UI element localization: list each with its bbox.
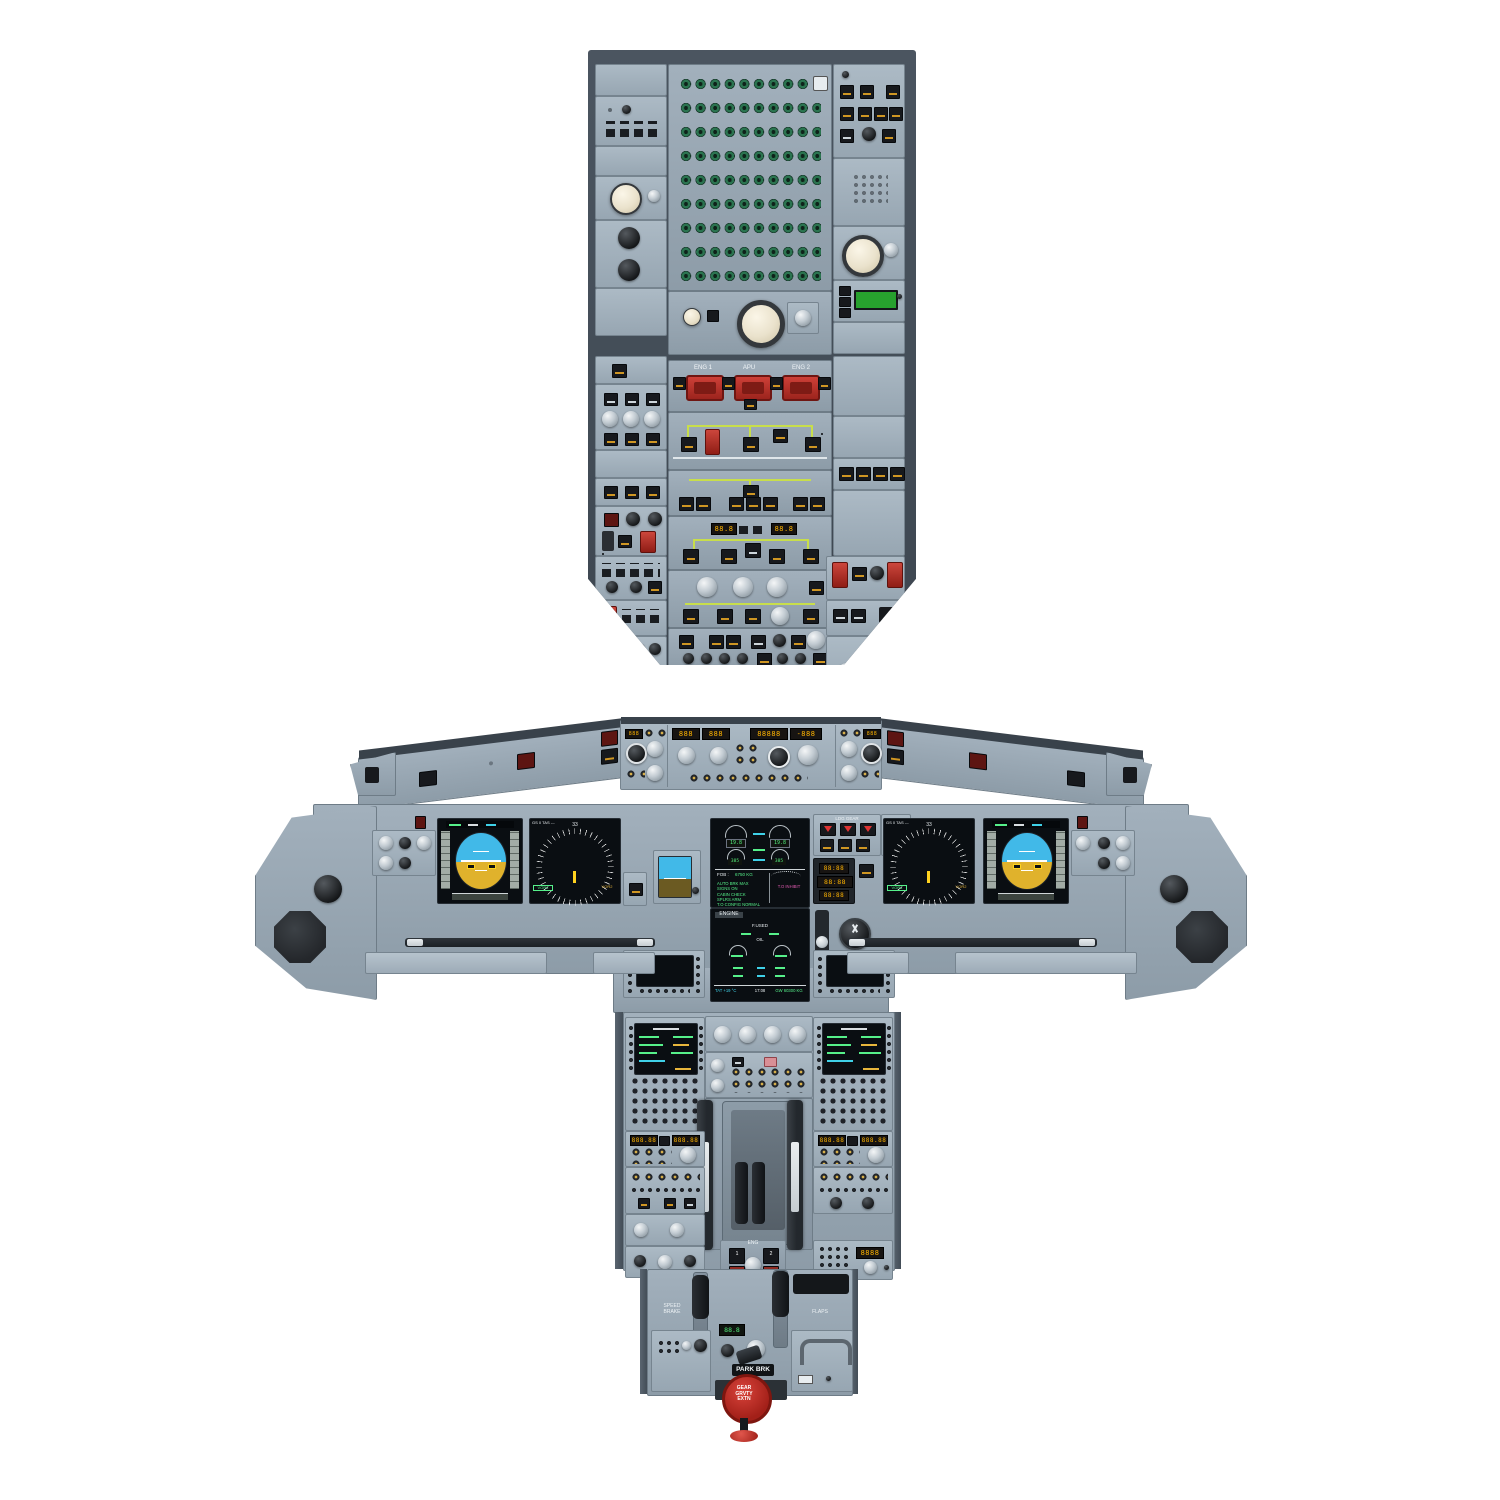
cb-row-6[interactable]	[679, 197, 821, 212]
radar-knob-1[interactable]	[714, 1026, 731, 1043]
fctl-korry-6[interactable]	[874, 107, 888, 121]
cargo-heat-knob[interactable]	[870, 566, 884, 580]
elec-gen1[interactable]	[683, 549, 699, 564]
extlt-knob-4[interactable]	[737, 653, 748, 664]
door-keypad[interactable]	[657, 1339, 679, 1355]
agent1-korry[interactable]	[673, 377, 686, 390]
cb-row-2[interactable]	[679, 101, 821, 116]
bleed1-korry[interactable]	[717, 609, 733, 624]
flap-indicator-arc	[771, 871, 801, 882]
speed-brake-lever[interactable]	[692, 1275, 709, 1319]
mcdu1-keyboard[interactable]	[630, 1076, 700, 1126]
nd2-gs-label: GS 0 TAS ---	[886, 821, 926, 825]
left-speaker-grille	[274, 911, 326, 963]
rk2[interactable]	[851, 609, 866, 623]
right-shelf-2	[847, 952, 909, 974]
loader-korry-1[interactable]	[839, 286, 851, 296]
dcdu-left-keys-b[interactable]	[638, 987, 690, 995]
ldg-gear-panel: LDG GEAR	[813, 814, 881, 856]
glareshield-left-wing	[358, 724, 624, 811]
egt-left-value: 385	[728, 859, 742, 865]
dome-knob-1[interactable]	[697, 679, 709, 691]
rmp1-knob[interactable]	[680, 1147, 696, 1163]
eng2-master-switch[interactable]: 2	[763, 1248, 779, 1264]
lg-knob2[interactable]	[630, 581, 642, 593]
eng-panel-label: ENG	[743, 1241, 763, 1247]
mcdu1-lsk-right[interactable]	[697, 1024, 703, 1072]
fctl-korry-4[interactable]	[840, 107, 854, 121]
master-warn-left[interactable]	[517, 752, 535, 770]
overhead-vent-panel	[595, 220, 667, 288]
probe-heat[interactable]	[751, 635, 766, 649]
flt-ctl-korry-1[interactable]	[840, 85, 854, 99]
rk1[interactable]	[833, 609, 848, 623]
thrust-lever-2[interactable]	[787, 1100, 803, 1250]
mcdu2-lsk-right[interactable]	[885, 1024, 891, 1072]
fire-eng1-label: ENG 1	[683, 365, 723, 372]
dcdu-right-keys-b[interactable]	[828, 987, 880, 995]
nd-mode-knob-left[interactable]	[647, 741, 663, 757]
rmp1-xfer[interactable]	[659, 1136, 670, 1146]
flaps-label: FLAPS	[807, 1310, 833, 1316]
baro-knob-left[interactable]	[626, 743, 647, 764]
elec-extpwr[interactable]	[745, 543, 761, 558]
cb-row-5[interactable]	[679, 173, 821, 188]
ecp-brightness-2[interactable]	[711, 1079, 724, 1092]
nd2-compass	[889, 827, 969, 907]
ecp-page-buttons[interactable]	[730, 1067, 808, 1093]
hyd-eng2-pump[interactable]	[805, 437, 821, 452]
acp1-korry3[interactable]	[684, 1198, 696, 1209]
cargo-heat-panel	[826, 556, 905, 600]
isis-knob[interactable]	[692, 887, 699, 894]
autobrk-max[interactable]	[856, 839, 870, 852]
gear-gravity-extn-handle[interactable]: GEAR GRVTY EXTN	[722, 1374, 772, 1424]
loader-korry-3[interactable]	[839, 308, 851, 318]
overhead-right-blank-low	[833, 322, 905, 354]
door-toggle[interactable]	[682, 1341, 691, 1350]
cond-knob-aft[interactable]	[767, 577, 787, 597]
pedestal: ENG 1 2 888.88 888.88	[615, 1012, 901, 1444]
ecam-inhibit-label: T.O INHIBIT	[773, 885, 805, 890]
calls-btn-1[interactable]	[611, 643, 623, 655]
xbleed-knob[interactable]	[771, 607, 789, 625]
efis-right: 888	[835, 725, 880, 787]
adirs-knob-3[interactable]	[644, 411, 660, 427]
wiper-knob-right[interactable]	[837, 663, 857, 683]
door-slide	[602, 531, 614, 551]
sidestick-priority-left	[419, 770, 437, 787]
rmp1-stby: 888.88	[672, 1135, 700, 1146]
eng1-fire-handle[interactable]	[686, 375, 724, 401]
lg-k3[interactable]	[648, 581, 662, 594]
pfd1-alt-tape	[510, 831, 519, 889]
efis-adf-right[interactable]	[859, 769, 879, 779]
clock-side-korry[interactable]	[859, 864, 874, 878]
fctl-korry-5[interactable]	[858, 107, 872, 121]
acp2-volume-row2[interactable]	[818, 1186, 888, 1196]
nd-range-knob-right[interactable]	[841, 765, 857, 781]
flt-ctl-korry-3[interactable]	[886, 85, 900, 99]
capt-knob-5[interactable]	[399, 857, 411, 869]
gear-light-left	[820, 823, 836, 836]
nd-range-knob-left[interactable]	[647, 765, 663, 781]
fo-knob-2[interactable]	[1098, 837, 1110, 849]
cond-hotair[interactable]	[809, 581, 824, 595]
mcdu1-lsk-left[interactable]	[627, 1024, 633, 1072]
reverser-lever-2[interactable]	[752, 1162, 765, 1224]
right-sidestick-boot[interactable]	[1160, 875, 1188, 903]
fcu-vs-knob[interactable]	[798, 745, 818, 765]
extlt-knob-1[interactable]	[683, 653, 694, 664]
atc-mode-knob[interactable]	[864, 1261, 877, 1274]
cond-knob-fwd[interactable]	[733, 577, 753, 597]
mcdu2-keyboard[interactable]	[818, 1076, 888, 1126]
fcu-spd-knob[interactable]	[678, 747, 695, 764]
antiice-press-panel	[668, 628, 832, 670]
left-tip-light	[365, 767, 379, 783]
pack2-korry[interactable]	[803, 609, 819, 624]
rmp2-xfer[interactable]	[847, 1136, 858, 1146]
nd2-vor2-label: VOR2	[952, 885, 970, 889]
cb-row-8[interactable]	[679, 245, 821, 260]
data-loader-lcd	[854, 290, 898, 310]
pfd2-attitude	[1001, 832, 1053, 890]
fob-label: FOB :	[717, 872, 735, 877]
cb-test-switch[interactable]	[813, 76, 828, 91]
apu-fire-handle[interactable]	[734, 375, 772, 401]
gpws-capt-korry[interactable]	[629, 883, 643, 896]
acp1-volume-row1[interactable]	[630, 1172, 700, 1184]
rud-trim-reset[interactable]	[721, 1344, 734, 1357]
ecp-brightness-1[interactable]	[711, 1059, 724, 1072]
fo-knob-3[interactable]	[1116, 836, 1130, 850]
right-top-dot	[842, 71, 849, 78]
atc-code-display: 8888	[856, 1247, 884, 1259]
elec-bustie[interactable]	[803, 549, 819, 564]
fuel-l2[interactable]	[696, 497, 711, 511]
clock-chr: 88:88	[819, 863, 849, 874]
efis-adf-left[interactable]	[625, 769, 645, 779]
black-knob-2[interactable]	[618, 259, 640, 281]
cvr-disc	[737, 300, 785, 348]
gpws-k4[interactable]	[602, 553, 604, 555]
fo-knob-5[interactable]	[1116, 856, 1130, 870]
door-video-knob[interactable]	[694, 1339, 707, 1352]
elec-mid-korries[interactable]	[739, 523, 767, 534]
aud-knob-3[interactable]	[684, 1255, 696, 1267]
pfd1-heading-strip	[452, 893, 508, 900]
rcdr-guard[interactable]	[640, 531, 656, 553]
ecam-lower: ENGINE F.USED OIL TAT +19 °C 17:08 GW 60…	[710, 908, 810, 1002]
loader-dot	[897, 294, 902, 299]
ditching-korry[interactable]	[791, 635, 806, 649]
radar-knob-2[interactable]	[739, 1026, 756, 1043]
dome-knob-2[interactable]	[723, 679, 735, 691]
switch-knob-1[interactable]	[634, 1223, 648, 1237]
capt-knob-1[interactable]	[379, 836, 393, 850]
pfd1-attitude	[455, 832, 507, 890]
cargo-guard-1[interactable]	[832, 562, 848, 588]
extlt-k3[interactable]	[646, 486, 660, 499]
gear-lever-handle[interactable]	[816, 936, 828, 948]
nd2-hdg-label: 33	[924, 823, 934, 829]
mcdu2-lsk-left[interactable]	[815, 1024, 821, 1072]
calls-btn-2[interactable]	[633, 643, 645, 655]
autoland-light-left	[415, 816, 426, 829]
cab-press-sel[interactable]	[773, 634, 786, 647]
flaps-lever[interactable]	[772, 1271, 789, 1317]
right-tip-light	[1123, 767, 1137, 783]
oil-label: OIL	[753, 937, 767, 942]
autobrk-med[interactable]	[838, 839, 852, 852]
adirs-korry-5[interactable]	[625, 433, 639, 446]
flt-ctl-korry-2[interactable]	[860, 85, 874, 99]
wiper-knob-left[interactable]	[635, 665, 655, 685]
nd-fo: GS 0 TAS --- 33 VOR1 VOR2	[883, 818, 975, 904]
acp2-knob1[interactable]	[830, 1197, 842, 1209]
adirs-knob-1[interactable]	[602, 411, 618, 427]
adirs-korry-2[interactable]	[625, 393, 639, 406]
ovh-korry-a[interactable]	[612, 364, 627, 378]
hyd-elec-pump-y[interactable]	[821, 433, 823, 435]
fctl-korry-7[interactable]	[889, 107, 903, 121]
right-shelf	[955, 952, 1137, 974]
pack1-korry[interactable]	[683, 609, 699, 624]
nd-mode-knob-right[interactable]	[841, 741, 857, 757]
pfd2-speed-tape	[987, 831, 996, 889]
left-grab-handle[interactable]	[405, 938, 655, 947]
evac-horn-button[interactable]	[622, 105, 631, 114]
master-warn-right[interactable]	[969, 752, 987, 770]
cargo-k2[interactable]	[856, 467, 871, 481]
gpws-knob-1[interactable]	[626, 512, 640, 526]
fctl-korry-9[interactable]	[882, 129, 896, 143]
efis-buttons-right[interactable]	[838, 728, 862, 738]
overhead-fo-oxygen-panel	[833, 226, 905, 280]
cb-row-3[interactable]	[679, 125, 821, 140]
switch-knob-2[interactable]	[670, 1223, 684, 1237]
calls-keys[interactable]	[622, 609, 660, 623]
ecam-upper-divider	[715, 869, 805, 870]
cb-row-1[interactable]	[679, 77, 809, 92]
acp1-korry2[interactable]	[664, 1198, 676, 1209]
eng1-master-switch[interactable]: 1	[729, 1248, 745, 1264]
left-korry-grid[interactable]	[602, 563, 660, 577]
capt-knob-4[interactable]	[379, 856, 393, 870]
fuel-r1[interactable]	[793, 497, 808, 511]
baro-knob-right[interactable]	[861, 743, 882, 764]
fo-knob-1[interactable]	[1076, 836, 1090, 850]
reverser-lever-1[interactable]	[735, 1162, 748, 1224]
gpws-knob-2[interactable]	[648, 512, 662, 526]
efis-buttons-left[interactable]	[643, 728, 667, 738]
cb-row-4[interactable]	[679, 149, 821, 164]
rmp2-keys[interactable]	[818, 1147, 860, 1164]
cargo-heat-k[interactable]	[852, 567, 867, 581]
aud-knob-1[interactable]	[634, 1255, 646, 1267]
left-sidestick-boot[interactable]	[314, 875, 342, 903]
pfd-capt	[437, 818, 523, 904]
rain-rplnt-left[interactable]	[611, 669, 623, 681]
fuel-c3[interactable]	[763, 497, 778, 511]
fused-label: F.USED	[747, 923, 773, 928]
autobrk-lo[interactable]	[820, 839, 834, 852]
gpws-k3[interactable]	[618, 535, 632, 548]
ecp-emer-canc[interactable]	[732, 1057, 744, 1067]
eng1-antiice[interactable]	[709, 635, 724, 649]
nosw-knob-2[interactable]	[795, 653, 806, 664]
efis-baro-display-left: 888	[625, 729, 643, 739]
ecp-to-config-button[interactable]	[764, 1057, 777, 1067]
pfd1-fma	[446, 821, 514, 828]
nosw-knob-1[interactable]	[777, 653, 788, 664]
dome-knob-3[interactable]	[749, 679, 761, 691]
gear-light-nose	[840, 823, 856, 836]
elec-apugen[interactable]	[721, 549, 737, 564]
gear-extn-pull-knob[interactable]	[730, 1430, 758, 1442]
acp1-volume-row2[interactable]	[630, 1186, 700, 1196]
elec-panel: 88.8 88.8	[668, 516, 832, 570]
agent3-korry[interactable]	[770, 377, 783, 390]
acp1-korry1[interactable]	[638, 1198, 650, 1209]
fcu-hdg-knob[interactable]	[710, 747, 727, 764]
emer-guard-left[interactable]	[602, 606, 617, 630]
seatbelt-korry[interactable]	[757, 653, 772, 666]
efis-baro-display-right: 888	[863, 729, 881, 739]
cb-row-7[interactable]	[679, 221, 821, 236]
adirs-korry-4[interactable]	[604, 433, 618, 446]
hyd-line-v1	[687, 425, 689, 437]
cargo-k3[interactable]	[873, 467, 888, 481]
apubleed-korry[interactable]	[745, 609, 761, 624]
acp2-knob2[interactable]	[862, 1197, 874, 1209]
printer-handle[interactable]	[800, 1339, 852, 1365]
maint-korry[interactable]	[707, 310, 719, 322]
ldg-elev-knob[interactable]	[807, 631, 825, 649]
loader-korry-2[interactable]	[839, 297, 851, 307]
main-antiskid-rotary[interactable]	[795, 310, 811, 326]
fo-knob-4[interactable]	[1098, 857, 1110, 869]
crew-oxygen-disc[interactable]	[610, 183, 642, 215]
rmp1-keys[interactable]	[630, 1147, 672, 1164]
agent2-korry[interactable]	[722, 377, 735, 390]
hyd-line-v2	[749, 425, 751, 437]
dcdu-left-keys-r[interactable]	[694, 955, 702, 993]
radar-knob-4[interactable]	[789, 1026, 806, 1043]
eng2-antiice[interactable]	[726, 635, 741, 649]
calls-btn-3[interactable]	[649, 643, 661, 655]
ovh-right-blank-b	[833, 416, 905, 458]
cargo-k1[interactable]	[839, 467, 854, 481]
hyd-ptu[interactable]	[773, 429, 788, 443]
fcu-lower-buttons[interactable]	[688, 773, 808, 784]
evac-switch-cluster[interactable]	[606, 121, 658, 137]
fcu-alt-display: 88888	[750, 728, 788, 740]
speed-brake-label: SPEED BRAKE	[657, 1304, 687, 1315]
wing-antiice[interactable]	[679, 635, 694, 649]
cargo-guard-2[interactable]	[887, 562, 903, 588]
fcu-ap-buttons[interactable]	[734, 743, 762, 767]
acp2-volume-row1[interactable]	[818, 1172, 888, 1184]
extlt-knob-2[interactable]	[701, 653, 712, 664]
master-warn2-right[interactable]	[887, 730, 904, 747]
fctl-round-knob[interactable]	[862, 127, 876, 141]
fctl-korry-8[interactable]	[840, 129, 854, 143]
right-grab-handle[interactable]	[847, 938, 1097, 947]
hyd-eng1-pump[interactable]	[681, 437, 697, 452]
mcdu-2	[813, 1017, 893, 1131]
fuel-l1[interactable]	[679, 497, 694, 511]
nd2-plane-symbol	[927, 871, 930, 883]
hyd-elec-pump-b[interactable]	[743, 437, 759, 452]
adirs-korry-1[interactable]	[604, 393, 618, 406]
fuel-r2[interactable]	[810, 497, 825, 511]
ecam-memo-divider	[769, 873, 770, 903]
rat-man-on-guard[interactable]	[705, 429, 720, 455]
efis-left: 888	[623, 725, 668, 787]
extlt-knob-3[interactable]	[719, 653, 730, 664]
cb-row-9[interactable]	[679, 269, 821, 284]
radar-knob-3[interactable]	[764, 1026, 781, 1043]
dome-korry[interactable]	[797, 680, 811, 693]
adirs-knob-2[interactable]	[623, 411, 639, 427]
cond-knob-cockpit[interactable]	[697, 577, 717, 597]
adirs-korry-6[interactable]	[646, 433, 660, 446]
fo-oxygen-disc[interactable]	[842, 235, 884, 277]
fuel-c2[interactable]	[746, 497, 761, 511]
acp-1	[625, 1167, 705, 1214]
apu-agent-korry[interactable]	[744, 399, 757, 410]
rmp2-knob[interactable]	[868, 1147, 884, 1163]
mcdu2-screen	[822, 1023, 886, 1075]
aircond-panel	[668, 570, 832, 628]
eng2-fire-handle[interactable]	[782, 375, 820, 401]
extlt-k1[interactable]	[604, 486, 618, 499]
rk-square[interactable]	[879, 607, 895, 623]
gpws-korry[interactable]	[604, 513, 619, 527]
master-warn2-left[interactable]	[601, 730, 618, 747]
fuel-c1[interactable]	[729, 497, 744, 511]
capt-knob-2[interactable]	[399, 837, 411, 849]
adirs-korry-3[interactable]	[646, 393, 660, 406]
nd2-vor1-label: VOR1	[887, 885, 907, 891]
dcdu-right-keys-l[interactable]	[816, 955, 824, 993]
fo-oxygen-knob[interactable]	[884, 243, 898, 257]
fcu-alt-knob[interactable]	[768, 746, 790, 768]
black-knob-1[interactable]	[618, 227, 640, 249]
rmp2-stby: 888.88	[860, 1135, 888, 1146]
rain-rplnt-right[interactable]	[871, 667, 883, 679]
extlt-k2[interactable]	[625, 486, 639, 499]
ovh-right-blank-a	[833, 356, 905, 416]
dome-knob-4[interactable]	[775, 679, 787, 691]
maint-white-knob[interactable]	[683, 308, 701, 326]
oxygen-test-knob[interactable]	[648, 190, 660, 202]
oil-left-arc	[729, 945, 747, 963]
lg-knob1[interactable]	[606, 581, 618, 593]
elec-gen2[interactable]	[769, 549, 785, 564]
aud-knob-2[interactable]	[658, 1255, 672, 1269]
master-caut-left[interactable]	[601, 748, 618, 765]
agent4-korry[interactable]	[818, 377, 831, 390]
left-wing-screw	[489, 761, 493, 765]
switching-panel	[625, 1214, 705, 1246]
master-caut-right[interactable]	[887, 748, 904, 765]
quadrant-housing	[722, 1101, 796, 1245]
cargo-k4[interactable]	[890, 467, 905, 481]
capt-knob-3[interactable]	[417, 836, 431, 850]
